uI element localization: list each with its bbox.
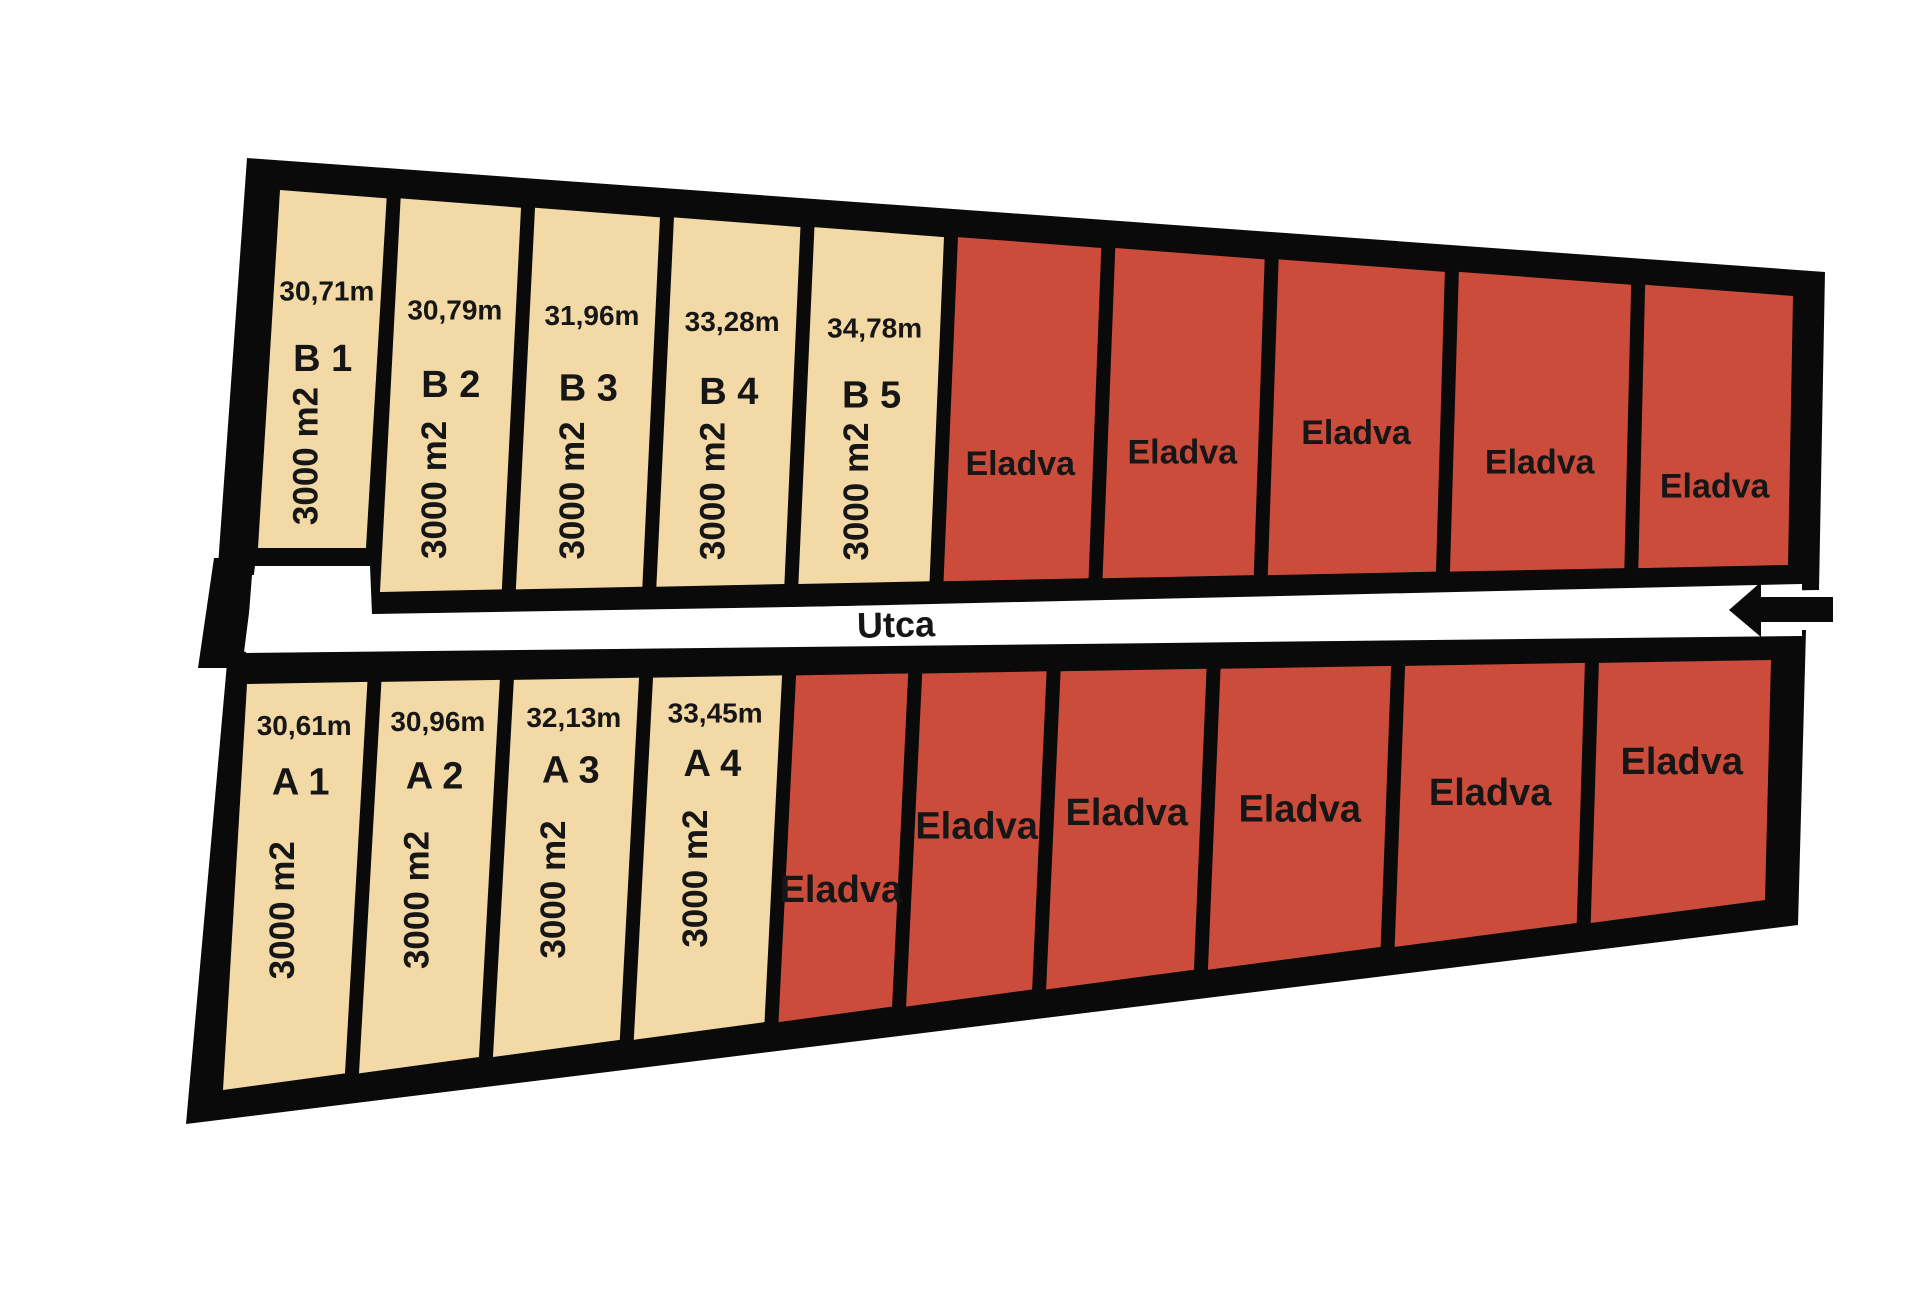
plot-b5-frontage-label: 34,78m (827, 312, 922, 343)
plot-top-sold-4-sold-label: Eladva (1485, 444, 1596, 482)
arrow-body (1756, 597, 1833, 622)
plot-b4-name-label: B 4 (699, 371, 758, 413)
plot-bottom-sold-6-shape (1591, 660, 1771, 923)
plot-bottom-sold-5-sold-label: Eladva (1429, 772, 1552, 814)
plot-a2-name-label: A 2 (406, 755, 464, 797)
plot-a4-area-label: 3000 m2 (676, 810, 715, 948)
street-label: Utca (857, 603, 937, 646)
plot-b1-area-label: 3000 m2 (287, 387, 326, 525)
plot-b2-area-label: 3000 m2 (415, 421, 454, 559)
plot-b3-frontage-label: 31,96m (544, 300, 639, 331)
plot-top-sold-5-shape (1638, 285, 1793, 568)
plot-bottom-sold-3-sold-label: Eladva (1066, 792, 1189, 834)
plot-b5-name-label: B 5 (842, 374, 901, 416)
site-plan: Utca 30,71mB 13000 m230,79mB 23000 m231,… (0, 0, 1920, 1306)
plot-bottom-sold-6-sold-label: Eladva (1620, 741, 1743, 783)
plot-bottom-sold-1-sold-label: Eladva (780, 869, 903, 911)
plot-b2-frontage-label: 30,79m (407, 294, 502, 325)
plot-b4-area-label: 3000 m2 (694, 422, 733, 560)
plot-a1-area-label: 3000 m2 (263, 841, 302, 979)
plot-top-sold-3-sold-label: Eladva (1301, 414, 1412, 452)
site-plan-canvas: Utca 30,71mB 13000 m230,79mB 23000 m231,… (0, 0, 1920, 1306)
plot-b1-frontage-label: 30,71m (279, 275, 374, 306)
plot-top-sold-4-shape (1450, 272, 1631, 572)
plot-a3-area-label: 3000 m2 (534, 820, 573, 958)
plot-bottom-sold-4-sold-label: Eladva (1238, 789, 1361, 831)
plot-top-sold-1-sold-label: Eladva (965, 445, 1076, 483)
plot-a2-frontage-label: 30,96m (390, 706, 485, 737)
plot-a4-frontage-label: 33,45m (668, 698, 763, 729)
plot-a4-name-label: A 4 (684, 743, 742, 785)
plot-b5-area-label: 3000 m2 (837, 422, 876, 560)
plot-b3-area-label: 3000 m2 (553, 421, 592, 559)
plot-a3-frontage-label: 32,13m (526, 702, 621, 733)
plot-top-sold-5-sold-label: Eladva (1660, 468, 1771, 506)
plot-bottom-sold-2-sold-label: Eladva (915, 805, 1038, 847)
plot-a2-area-label: 3000 m2 (397, 831, 436, 969)
plot-b3-name-label: B 3 (559, 367, 618, 409)
plot-a3-name-label: A 3 (542, 749, 600, 791)
plot-b1-name-label: B 1 (293, 338, 352, 380)
plot-a1-frontage-label: 30,61m (257, 710, 352, 741)
plot-top-sold-2-sold-label: Eladva (1127, 434, 1238, 472)
plot-top-sold-2-shape (1103, 248, 1265, 578)
plot-b2-name-label: B 2 (421, 364, 480, 406)
plot-b4-frontage-label: 33,28m (685, 306, 780, 337)
plot-top-sold-1-shape (944, 237, 1102, 581)
plot-bottom-sold-1-shape (778, 673, 908, 1022)
plot-a1-name-label: A 1 (272, 762, 330, 804)
